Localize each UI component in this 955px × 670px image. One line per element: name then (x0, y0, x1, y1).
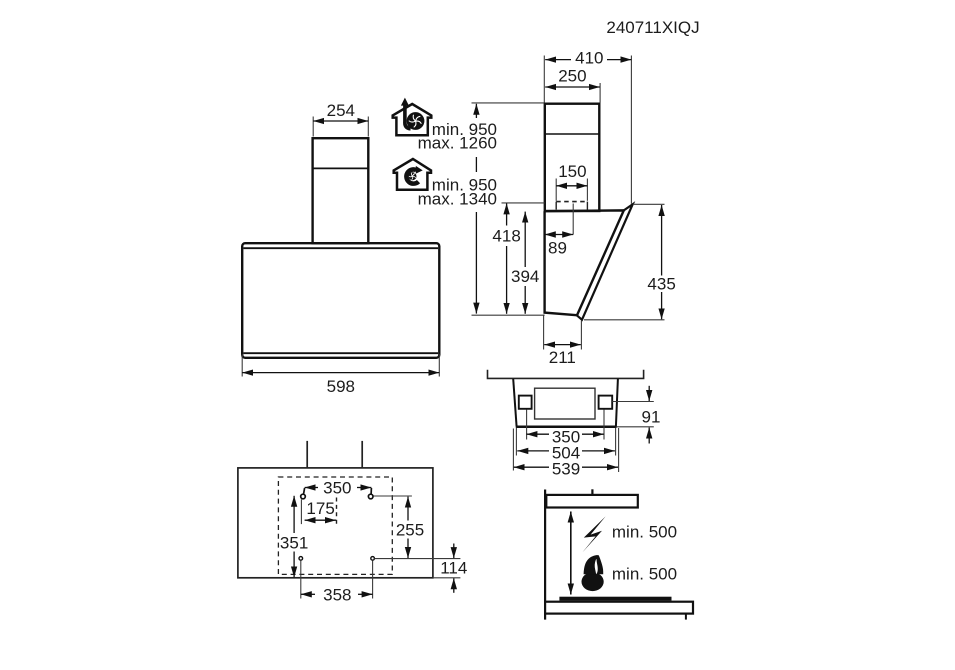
svg-text:114: 114 (440, 558, 467, 577)
svg-text:max. 1340: max. 1340 (418, 190, 497, 209)
svg-text:350: 350 (323, 479, 351, 498)
svg-text:418: 418 (492, 227, 520, 246)
svg-text:150: 150 (558, 162, 586, 181)
svg-text:250: 250 (558, 67, 586, 86)
svg-text:91: 91 (642, 407, 661, 426)
svg-text:539: 539 (552, 460, 580, 479)
svg-text:max. 1260: max. 1260 (418, 134, 497, 153)
svg-text:89: 89 (548, 239, 567, 258)
svg-text:358: 358 (323, 585, 351, 604)
svg-text:435: 435 (647, 275, 675, 294)
svg-text:211: 211 (549, 348, 576, 367)
svg-text:254: 254 (327, 101, 355, 120)
svg-text:175: 175 (306, 499, 334, 518)
svg-text:410: 410 (575, 49, 603, 68)
svg-text:min. 500: min. 500 (612, 523, 677, 542)
svg-text:394: 394 (511, 267, 539, 286)
svg-text:598: 598 (327, 377, 355, 396)
svg-text:351: 351 (280, 534, 308, 553)
svg-text:min. 500: min. 500 (612, 565, 677, 584)
svg-text:240711XIQJ: 240711XIQJ (606, 18, 699, 37)
svg-text:255: 255 (396, 521, 424, 540)
